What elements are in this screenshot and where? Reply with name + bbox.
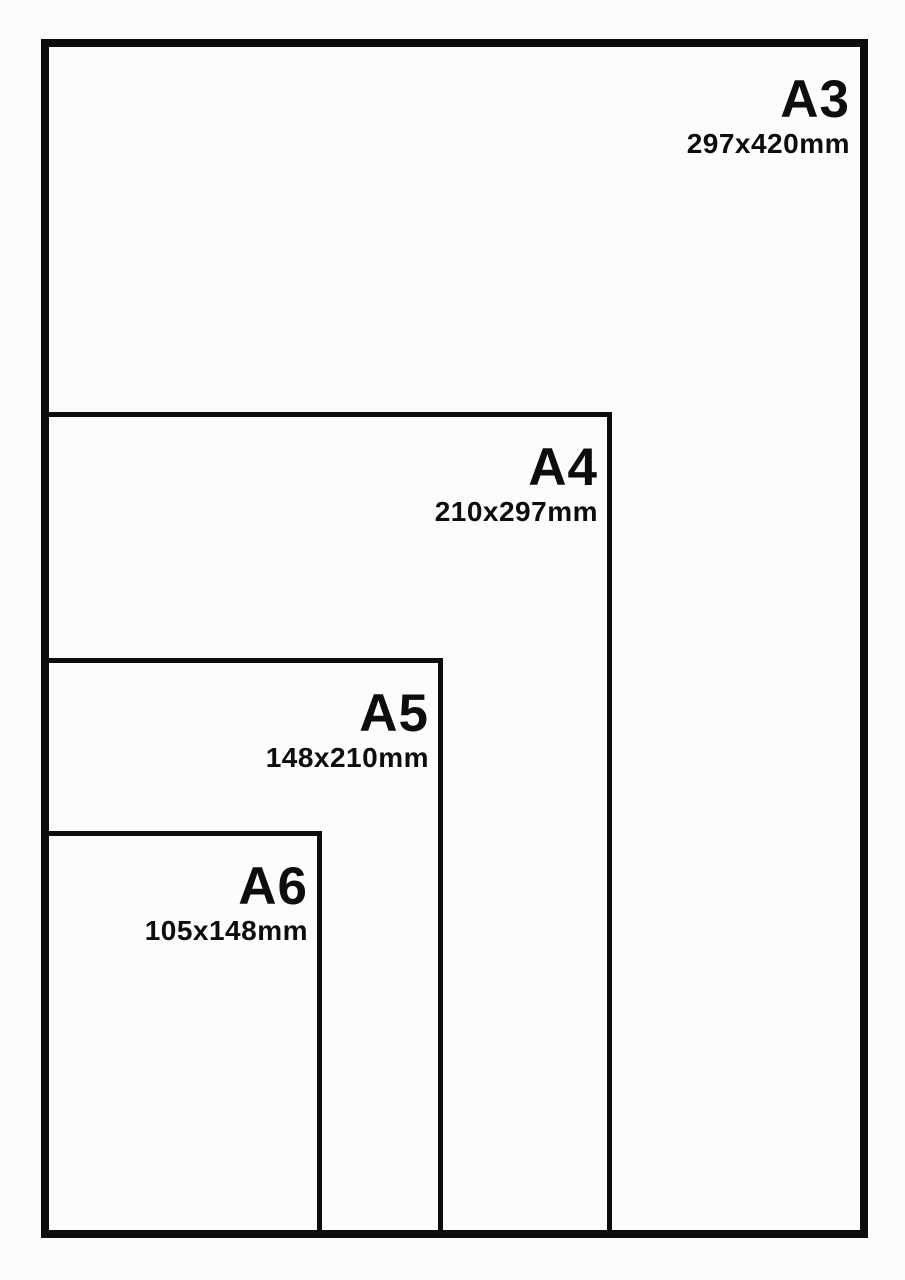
a6-size-name: A6	[145, 860, 308, 913]
a6-frame: A6 105x148mm	[41, 831, 322, 1238]
a4-size-name: A4	[435, 441, 598, 494]
a5-size-dimensions: 148x210mm	[266, 744, 429, 772]
a6-size-dimensions: 105x148mm	[145, 917, 308, 945]
a3-size-dimensions: 297x420mm	[687, 130, 850, 158]
a4-size-dimensions: 210x297mm	[435, 498, 598, 526]
a5-label-group: A5 148x210mm	[266, 687, 429, 772]
a3-label-group: A3 297x420mm	[687, 73, 850, 158]
a6-label-group: A6 105x148mm	[145, 860, 308, 945]
a3-size-name: A3	[687, 73, 850, 126]
a4-label-group: A4 210x297mm	[435, 441, 598, 526]
a5-size-name: A5	[266, 687, 429, 740]
